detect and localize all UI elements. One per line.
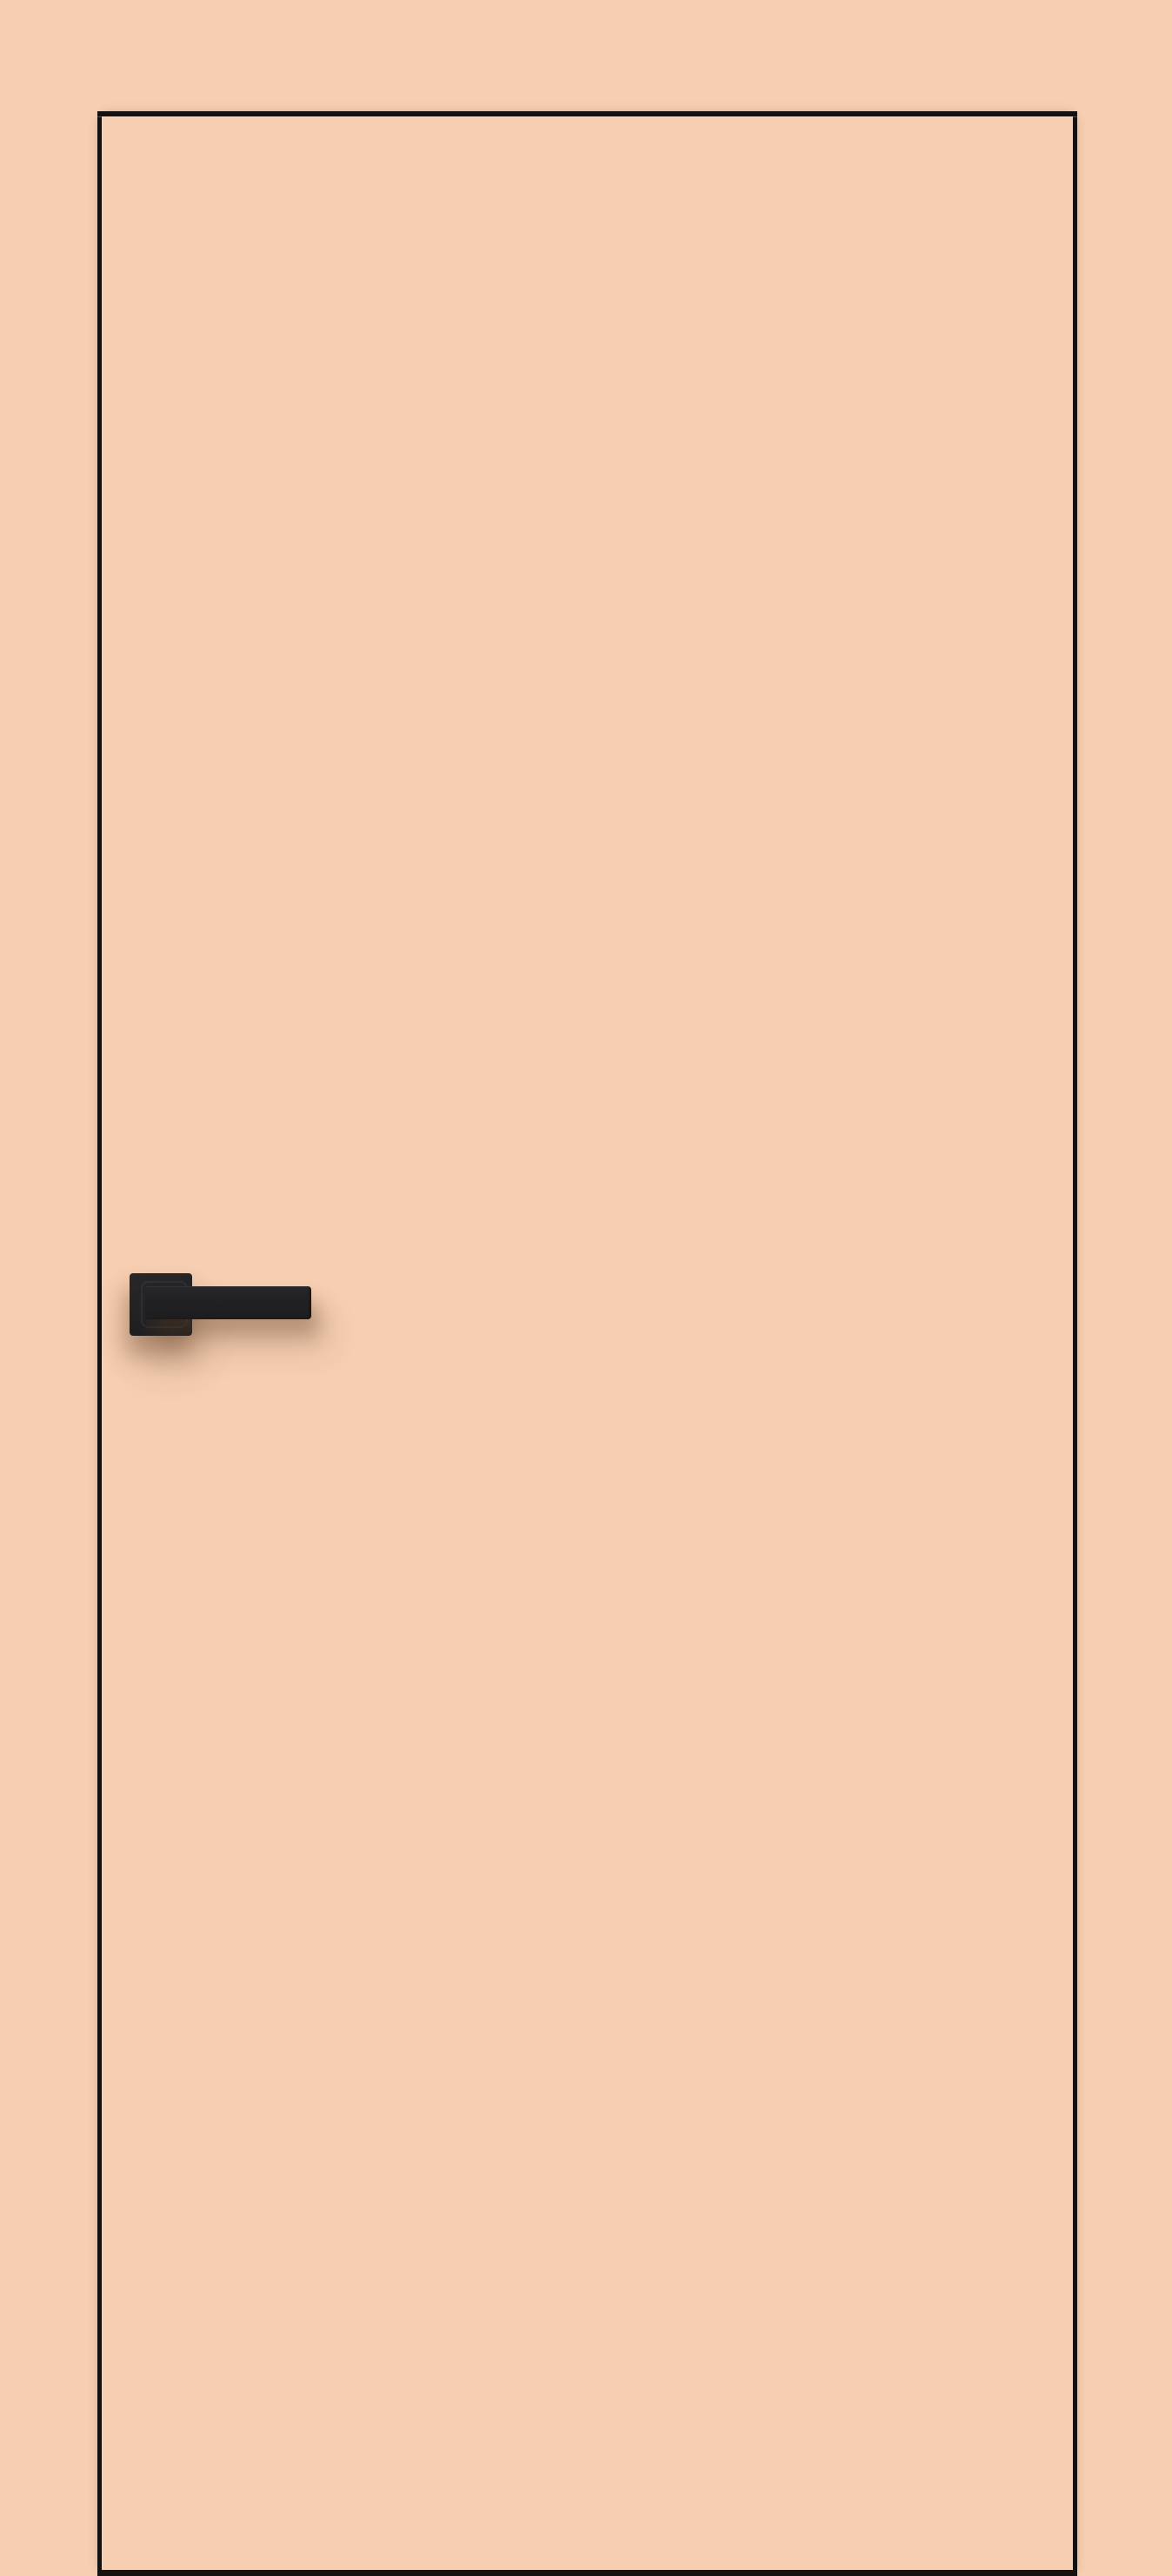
photo-background-wall	[0, 0, 1172, 2576]
handle-lever	[145, 1286, 311, 1319]
door-leaf	[97, 111, 1077, 2576]
